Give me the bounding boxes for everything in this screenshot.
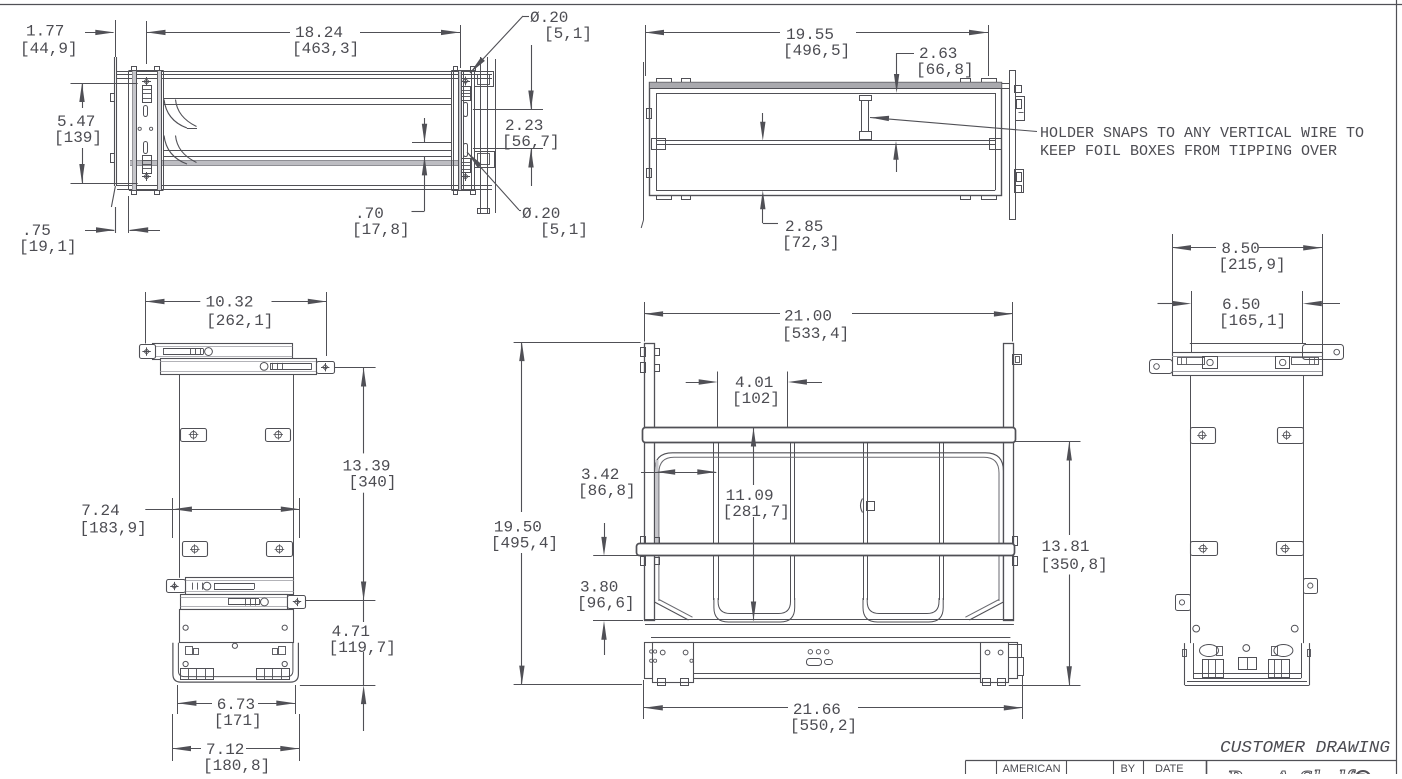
svg-text:[72,3]: [72,3] (782, 234, 840, 252)
svg-text:[19,1]: [19,1] (19, 238, 77, 256)
svg-text:[550,2]: [550,2] (790, 717, 857, 735)
svg-text:CUSTOMER DRAWING: CUSTOMER DRAWING (1220, 739, 1390, 758)
svg-text:[5,1]: [5,1] (540, 221, 588, 239)
svg-text:[262,1]: [262,1] (206, 312, 273, 330)
svg-text:[165,1]: [165,1] (1219, 312, 1286, 330)
svg-text:[119,7]: [119,7] (329, 639, 396, 657)
svg-text:[96,6]: [96,6] (577, 595, 635, 613)
svg-text:7.24: 7.24 (81, 502, 119, 520)
svg-text:[340]: [340] (349, 474, 397, 492)
svg-text:AMERICAN: AMERICAN (1002, 763, 1060, 774)
svg-text:[350,8]: [350,8] (1041, 556, 1108, 574)
svg-text:[281,7]: [281,7] (723, 503, 790, 521)
svg-text:[533,4]: [533,4] (782, 325, 849, 343)
svg-text:HOLDER SNAPS TO ANY VERTICAL W: HOLDER SNAPS TO ANY VERTICAL WIRE TO (1040, 125, 1364, 142)
svg-text:[56,7]: [56,7] (502, 133, 560, 151)
svg-text:13.81: 13.81 (1042, 538, 1090, 556)
svg-text:[183,9]: [183,9] (80, 520, 147, 538)
svg-text:[86,8]: [86,8] (578, 482, 636, 500)
svg-text:[496,5]: [496,5] (783, 42, 850, 60)
svg-text:Rev-A-Shelf®: Rev-A-Shelf® (1226, 767, 1372, 774)
svg-text:KEEP FOIL BOXES FROM TIPPING O: KEEP FOIL BOXES FROM TIPPING OVER (1040, 143, 1337, 160)
svg-text:1.77: 1.77 (26, 23, 64, 41)
svg-text:10.32: 10.32 (206, 294, 254, 312)
svg-text:[5,1]: [5,1] (544, 25, 592, 43)
svg-text:21.00: 21.00 (784, 308, 832, 326)
svg-text:DATE: DATE (1155, 763, 1184, 774)
svg-text:[180,8]: [180,8] (203, 757, 270, 774)
svg-text:[215,9]: [215,9] (1218, 256, 1285, 274)
svg-text:[102]: [102] (732, 390, 780, 408)
svg-text:[17,8]: [17,8] (352, 221, 410, 239)
svg-text:[139]: [139] (54, 129, 102, 147)
svg-text:[66,8]: [66,8] (916, 61, 974, 79)
svg-text:[44,9]: [44,9] (20, 40, 78, 58)
svg-text:[171]: [171] (214, 712, 262, 730)
svg-text:[495,4]: [495,4] (491, 535, 558, 553)
svg-text:BY: BY (1120, 763, 1135, 774)
svg-text:[463,3]: [463,3] (292, 40, 359, 58)
